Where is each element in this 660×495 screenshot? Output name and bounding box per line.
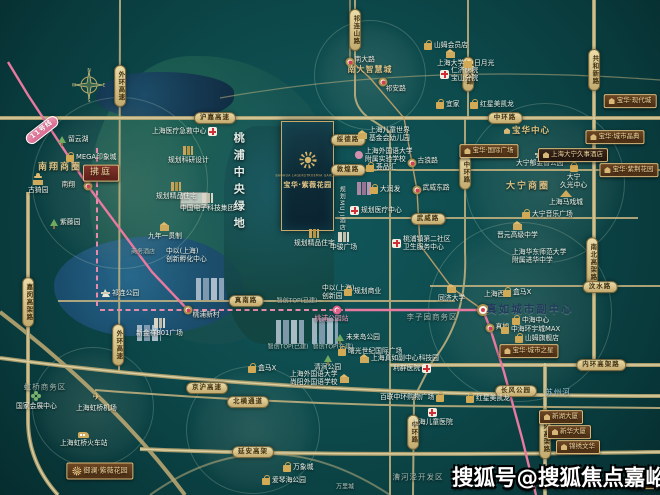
med-icon	[392, 239, 401, 248]
liuyun-lake: 留云湖	[58, 135, 88, 143]
med-icon	[208, 127, 217, 136]
road-qilianshan: 祁连山路	[349, 9, 361, 51]
flower-icon	[31, 391, 41, 401]
road-jinghu-expwy: 京沪高速	[186, 382, 228, 394]
jinhua-middle-school: 上海华东师范大学附属进华中学	[512, 248, 566, 264]
build2-icon	[202, 193, 213, 203]
shanghai-emergency-center: 上海医疗急救中心	[152, 127, 217, 136]
suzhou-creek: 苏州河	[545, 388, 571, 397]
mega-mall: MEGA印象城	[66, 152, 116, 162]
nanxiang-cbd: 南翔商圈	[38, 163, 82, 174]
build-icon	[171, 182, 181, 191]
med-icon	[422, 364, 431, 373]
project-name-en: BAOHUA LAGERSTROEMIA GARDEN	[276, 174, 340, 178]
shop-icon	[283, 465, 291, 472]
road-yanan-elevated: 延安高架	[232, 446, 274, 458]
mixc-mall: 万象城	[283, 462, 313, 472]
baohua-city-crystal: 宝华·城市晶典	[585, 130, 644, 144]
road-hujia-expwy: 沪嘉高速	[194, 112, 236, 124]
build-icon	[309, 229, 319, 238]
shanghai-children-hospital: 上海儿童医院	[412, 408, 453, 426]
baohua-center: 宝华中心	[500, 124, 554, 138]
road-jiamin-elevated: 嘉闵高架路	[22, 277, 34, 327]
train-icon	[78, 432, 89, 438]
zhichuang-top-1: 智创TOP(已建)	[277, 297, 318, 304]
yulan-ziwei-garden: 御澜·紫薇花园	[66, 463, 133, 480]
park-icon	[324, 355, 332, 362]
tent-icon	[560, 190, 572, 197]
planned-muji-hotel: 规划MUJI酒店	[338, 186, 345, 231]
banner-logo-icon	[604, 167, 610, 173]
daning-jiuguang: 大宁久光中心	[560, 162, 587, 189]
sail-icon	[102, 289, 110, 297]
sisu-shangyang-school: 上海外国语大学尚阳外国语学校	[290, 370, 349, 386]
station-taopu-xincun: 桃浦新村	[184, 306, 193, 315]
planned-retail: 规划商业	[344, 286, 381, 296]
banner-logo-icon	[72, 467, 81, 476]
jinxiu-wenhua: 锦绣文华	[556, 440, 600, 454]
road-gonghexin: 共和新路	[588, 49, 600, 91]
banner-logo-icon	[561, 444, 567, 450]
taopu-central-green-label: 桃浦中央绿地	[232, 132, 245, 234]
hema-x-zhenru: 盒马X	[503, 287, 531, 297]
shop-icon	[366, 165, 374, 172]
project-name-cn: 宝华·紫薇花园	[283, 180, 331, 190]
banner-logo-icon	[590, 134, 596, 140]
school-icon	[360, 357, 369, 363]
hongqiao-railway-station: 上海虹桥火车站	[60, 430, 108, 447]
xinhu-tower: 新湖大厦	[539, 410, 583, 424]
station-zhenru: 真如	[486, 324, 495, 333]
children-world-kindergarten: 上海儿童世界基金会幼儿园	[358, 126, 410, 142]
baohua-city-star: 宝华·城市之星	[499, 344, 558, 358]
cetc-group: 中国电子科技集团	[180, 193, 234, 212]
build2-icon	[154, 318, 165, 328]
huipinhui: 荟品汇	[366, 162, 396, 172]
station-taopu-park-planned: 桃浦公园站	[333, 306, 342, 315]
shop-icon	[424, 43, 432, 50]
road-dunhuang: 敦煌路	[331, 164, 366, 176]
road-zhennan: 真南路	[229, 295, 264, 307]
park-icon	[50, 219, 58, 226]
park-icon	[58, 136, 66, 143]
banner-logo-icon	[544, 414, 550, 420]
baohua-modern-city: 宝华·现代城	[604, 94, 657, 108]
ikea: 宜家	[436, 99, 460, 109]
banner-logo-icon	[504, 128, 510, 134]
compass-e: E	[103, 83, 106, 89]
daning-music-plaza: 大宁音乐广场	[522, 209, 573, 219]
project-card: BAOHUA LAGERSTROEMIA GARDEN 宝华·紫薇花园	[281, 121, 334, 231]
station-gulanglu-label: 古浪路	[418, 157, 438, 165]
school-icon	[447, 287, 456, 293]
daning-hotel: 上海大宁久事酒店	[538, 148, 608, 162]
station-nanxiang-label: 南翔	[62, 181, 76, 189]
compass-w: W	[72, 83, 77, 89]
jinyuan-high-school: 晋元高级中学	[497, 221, 538, 239]
daning-cbd: 大宁商圈	[506, 182, 550, 193]
sohu-watermark: 搜狐号@搜狐焦点嘉峪关站	[452, 461, 660, 492]
zhenru-tech-park: 上海真如副中心科技园	[360, 354, 439, 363]
taopu-community-health-center: 桃浦镇第二社区卫生服务中心	[392, 235, 451, 251]
compass-icon: N E S W	[72, 68, 106, 102]
station-wuweidonglu: 武威东路	[413, 186, 422, 195]
road-wenshui: 汶水路	[583, 281, 618, 293]
china-israel-innovation-center: 中以(上海)创新孵化中心	[166, 247, 207, 263]
station-wuweidonglu-label: 武威东路	[423, 184, 450, 192]
road-beiheng-tunnel: 北横通道	[227, 396, 269, 408]
hongqiao-airport: ✈上海虹桥机场	[76, 393, 117, 412]
banner-logo-icon	[464, 148, 470, 154]
pav-icon	[33, 180, 43, 185]
road-nanbei-elevated: 南北高架路	[586, 237, 598, 287]
future-island-park: 未来岛公园	[336, 333, 380, 341]
business-hotel-label: 商务酒店	[131, 248, 155, 255]
rt-mart: 大润发	[370, 184, 400, 194]
shop-icon	[503, 290, 511, 297]
xinhua-tower: 新华大厦	[547, 425, 591, 439]
baohua-intl-plaza: 宝华·国际广场	[459, 144, 518, 158]
med-icon	[440, 70, 449, 79]
shop-icon	[262, 478, 270, 485]
shop-icon	[436, 395, 444, 402]
school-icon	[340, 377, 349, 383]
station-qianlu: 祁安路	[379, 78, 388, 87]
sisu-affiliated-school: 上海外国语大学附属实验学校	[355, 147, 413, 163]
station-qianlu-label: 祁安路	[386, 85, 406, 93]
nanda-smart-city: 南大智慧城	[348, 65, 393, 75]
station-nandalu-label: 南大路	[355, 56, 375, 64]
futing-project: 拂庭	[83, 165, 119, 182]
road-waihuan-north: 外环高速	[114, 65, 126, 107]
banner-logo-icon	[504, 348, 510, 354]
hongxing-north: 红星美凯龙	[470, 99, 514, 109]
renji-hospital-baoshan: 仁济医院宝山分院	[440, 66, 478, 82]
hongxing-south: 红星美凯龙	[466, 393, 510, 403]
shop-icon	[66, 155, 74, 162]
tongji-university: 同济大学	[438, 284, 465, 302]
hema-x-taopu: 盒马X	[248, 363, 276, 373]
med-icon	[428, 408, 437, 417]
planned-medical-center: 规划医疗中心	[350, 206, 402, 215]
station-taopu-park-planned-label: 桃浦公园站	[315, 315, 349, 323]
liziyuan-cbd: 李子园商务区	[407, 313, 458, 322]
shop-icon	[570, 165, 578, 172]
sams-flagship: 山姆旗舰店	[515, 333, 559, 343]
nine-year-school: 九年一贯制	[148, 222, 182, 240]
school-icon	[513, 224, 522, 230]
aegean-mall: 爱琴海公园	[262, 475, 306, 485]
shop-icon	[515, 336, 523, 343]
build2-icon	[338, 232, 349, 242]
shop-icon	[370, 187, 378, 194]
shop-icon	[436, 102, 444, 109]
shop-icon	[501, 327, 509, 334]
road-wuwei: 武威路	[411, 213, 446, 225]
banner-logo-icon	[552, 429, 558, 435]
compass-n: N	[87, 68, 90, 74]
road-zhonghuan-top: 中环路	[488, 112, 523, 124]
baohua-zijing-garden: 宝华·紫荆花园	[599, 163, 658, 177]
qilian-park: 祁连公园	[102, 289, 139, 297]
art-icon	[355, 151, 363, 159]
shop-icon	[470, 102, 478, 109]
towers-top-built	[276, 320, 306, 344]
wisteria-garden: 紫藤园	[50, 218, 80, 226]
compass-s: S	[88, 98, 91, 102]
qingjian-park: 清涧公园	[314, 355, 341, 371]
build-icon	[183, 146, 193, 155]
planned-residence-center: 规划精品住宅	[294, 229, 335, 247]
zhongjun-plaza: 中骏广场	[330, 232, 357, 251]
caohejing-zone: 漕河泾开发区	[393, 473, 444, 482]
sunburst-logo-icon	[295, 150, 321, 170]
shanghai-university: 上海大学	[437, 49, 464, 67]
school-icon	[160, 225, 169, 231]
zhichuang-top-2: 智创TOP(已建)	[268, 343, 309, 350]
planned-research-design: 规划科研设计	[168, 146, 209, 164]
road-waihuan-south: 外环高速	[112, 324, 124, 366]
shanghai-circus-world: 上海马戏城	[549, 190, 583, 206]
road-neihuan-horizontal: 内环高架路	[576, 359, 626, 371]
road-zhonghuan-mid: 中环路	[459, 155, 471, 190]
shop-icon	[464, 61, 472, 68]
riyueguang-center: 日月光	[464, 58, 494, 68]
station-taopu-xincun-label: 桃浦新村	[193, 311, 220, 319]
guyi-garden: 古猗园	[28, 176, 48, 194]
park-icon	[336, 334, 344, 341]
banner-logo-icon	[609, 98, 615, 104]
school-icon	[358, 133, 367, 139]
shop-icon	[466, 396, 474, 403]
med-icon	[350, 206, 359, 215]
banner-logo-icon	[543, 152, 549, 158]
plane-icon: ✈	[92, 393, 100, 403]
wanli-town: 万里城	[336, 483, 354, 490]
station-nanxiang: 南翔	[84, 182, 93, 191]
xinjinxiang-plaza: 新金祥801广场	[136, 318, 183, 337]
location-map: N E S W BAOHUA LAGERSTROEMIA GARDEN 宝华·紫…	[0, 0, 660, 495]
shop-icon	[522, 212, 530, 219]
liqun-hospital: 利群医院	[393, 364, 431, 373]
school-icon	[446, 52, 455, 58]
shop-icon	[344, 289, 352, 296]
bailian-zhonghuan-mall: 百联中环购物广场	[380, 392, 444, 402]
necc-center: 国家会展中心	[16, 391, 57, 410]
shop-icon	[248, 366, 256, 373]
